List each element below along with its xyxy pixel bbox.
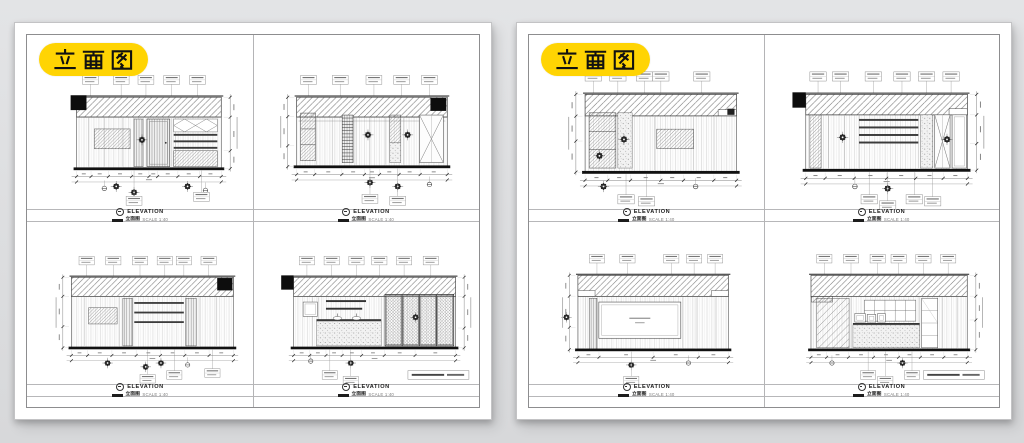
- elevation-caption-cn: 立面图: [125, 392, 139, 398]
- datum-marker-icon: [427, 177, 432, 187]
- elevation-title-badge: 立面图: [39, 43, 148, 76]
- datum-marker-icon: [853, 178, 858, 189]
- elevation-cell-p1-b: [253, 35, 479, 209]
- drawing-code-smudge: [112, 394, 123, 397]
- drawing-code-smudge: [853, 394, 864, 397]
- detail-marker-icon: [102, 358, 112, 368]
- material-tag: [138, 75, 154, 84]
- elevation-ref-circle-icon: [116, 208, 124, 216]
- material-tag: [396, 256, 411, 265]
- material-tag: [924, 197, 940, 206]
- elevation-caption: ELEVATION立面图SCALE 1:40: [338, 383, 394, 399]
- material-tag: [941, 254, 956, 263]
- material-tag: [810, 72, 826, 81]
- material-tag: [422, 75, 438, 84]
- elevation-caption-title: ELEVATION: [634, 384, 671, 390]
- material-tag: [157, 256, 172, 265]
- material-tag: [843, 254, 858, 263]
- elevation-drawing-p2-d: [764, 222, 999, 384]
- material-tag: [918, 72, 934, 81]
- drawing-code-smudge: [618, 394, 629, 397]
- material-tag: [83, 75, 99, 84]
- material-tag: [870, 254, 885, 263]
- material-tag: [366, 75, 382, 84]
- material-tag: [916, 254, 931, 263]
- material-tag: [906, 195, 922, 204]
- elevation-title-badge: 立面图: [541, 43, 650, 76]
- elevation-drawing-p2-b: [764, 35, 999, 209]
- elevation-ref-circle-icon: [116, 383, 124, 391]
- material-tag: [190, 75, 206, 84]
- elevation-ref-circle-icon: [342, 383, 350, 391]
- note-box: [923, 371, 984, 380]
- sheet-center-divider: [764, 35, 765, 407]
- elevation-caption: ELEVATION立面图SCALE 1:40: [853, 383, 909, 399]
- material-tag: [140, 374, 155, 383]
- elevation-caption-scale: SCALE 1:40: [649, 392, 675, 398]
- elevation-ref-circle-icon: [342, 208, 350, 216]
- elevation-ref-circle-icon: [623, 383, 631, 391]
- material-tag: [349, 256, 364, 265]
- material-tag: [167, 371, 182, 380]
- datum-marker-icon: [203, 182, 208, 192]
- elevation-caption: ELEVATION立面图SCALE 1:40: [618, 208, 674, 224]
- material-tag: [132, 256, 147, 265]
- material-tag: [394, 75, 410, 84]
- detail-marker-icon: [156, 358, 166, 368]
- sheet-2-grid: ELEVATION立面图SCALE 1:40ELEVATION立面图SCALE …: [529, 35, 999, 407]
- cjk-title-glyphs: [54, 49, 133, 71]
- material-tag: [865, 72, 881, 81]
- material-tag: [620, 254, 635, 263]
- material-tag: [664, 254, 679, 263]
- elevation-caption: ELEVATION立面图SCALE 1:40: [338, 208, 394, 224]
- material-tag: [194, 192, 210, 201]
- elevation-cell-p2-d: [764, 222, 999, 384]
- datum-marker-icon: [185, 357, 189, 367]
- detail-marker-icon: [598, 181, 609, 192]
- material-tag: [904, 371, 919, 380]
- material-tag: [878, 376, 893, 384]
- elevation-caption-title: ELEVATION: [869, 384, 906, 390]
- material-tag: [943, 72, 959, 81]
- elevation-caption-cn: 立面图: [632, 392, 646, 398]
- material-tag: [126, 196, 142, 205]
- material-tag: [362, 194, 378, 203]
- material-tag: [687, 254, 702, 263]
- elevation-cell-p2-b: [764, 35, 999, 209]
- elevation-cell-p1-c: [27, 222, 253, 384]
- drawing-sheet-1: ELEVATION立面图SCALE 1:40ELEVATION立面图SCALE …: [14, 22, 492, 420]
- elevation-caption-title: ELEVATION: [353, 209, 390, 215]
- sheet-center-divider: [253, 35, 254, 407]
- material-tag: [894, 72, 910, 81]
- material-tag: [832, 72, 848, 81]
- material-tag: [113, 75, 129, 84]
- detail-marker-icon: [182, 181, 193, 192]
- elevation-ref-circle-icon: [623, 208, 631, 216]
- detail-marker-icon: [140, 362, 150, 372]
- elevation-drawing-p1-c: [27, 222, 253, 384]
- elevation-caption-title: ELEVATION: [127, 384, 164, 390]
- elevation-cell-p1-d: [253, 222, 479, 384]
- datum-marker-icon: [686, 355, 690, 365]
- detail-marker-icon: [111, 181, 122, 192]
- elevation-drawing-p1-b: [253, 35, 479, 209]
- note-box: [408, 371, 469, 380]
- detail-marker-icon: [897, 358, 907, 368]
- material-tag: [861, 371, 876, 380]
- material-tag: [301, 75, 317, 84]
- elevation-caption: ELEVATION立面图SCALE 1:40: [853, 208, 909, 224]
- elevation-caption-scale: SCALE 1:40: [368, 392, 394, 398]
- elevation-ref-circle-icon: [858, 208, 866, 216]
- material-tag: [106, 256, 121, 265]
- material-tag: [879, 201, 895, 209]
- elevation-caption-cn: 立面图: [351, 392, 365, 398]
- preview-stage: ELEVATION立面图SCALE 1:40ELEVATION立面图SCALE …: [0, 0, 1024, 443]
- material-tag: [324, 256, 339, 265]
- elevation-ref-circle-icon: [858, 383, 866, 391]
- elevation-caption-scale: SCALE 1:40: [142, 392, 168, 398]
- drawing-code-smudge: [338, 394, 349, 397]
- elevation-caption-title: ELEVATION: [353, 384, 390, 390]
- elevation-caption-scale: SCALE 1:40: [884, 392, 910, 398]
- material-tag: [201, 256, 216, 265]
- elevation-caption: ELEVATION立面图SCALE 1:40: [112, 383, 168, 399]
- material-tag: [390, 196, 406, 205]
- material-tag: [891, 254, 906, 263]
- cjk-title-glyphs: [556, 49, 635, 71]
- elevation-caption: ELEVATION立面图SCALE 1:40: [112, 208, 168, 224]
- material-tag: [205, 369, 220, 378]
- material-tag: [589, 254, 604, 263]
- material-tag: [299, 256, 314, 265]
- elevation-caption: ELEVATION立面图SCALE 1:40: [618, 383, 674, 399]
- material-tag: [176, 256, 191, 265]
- drawing-sheet-2: ELEVATION立面图SCALE 1:40ELEVATION立面图SCALE …: [516, 22, 1012, 420]
- datum-marker-icon: [693, 178, 698, 189]
- material-tag: [164, 75, 180, 84]
- material-tag: [423, 256, 438, 265]
- elevation-caption-title: ELEVATION: [869, 209, 906, 215]
- material-tag: [79, 256, 94, 265]
- material-tag: [618, 195, 634, 204]
- datum-marker-icon: [830, 355, 834, 365]
- material-tag: [638, 197, 654, 206]
- elevation-drawing-p1-d: [253, 222, 479, 384]
- material-tag: [707, 254, 722, 263]
- sheet-1-grid: ELEVATION立面图SCALE 1:40ELEVATION立面图SCALE …: [27, 35, 479, 407]
- elevation-cell-p2-c: [529, 222, 764, 384]
- material-tag: [372, 256, 387, 265]
- datum-marker-icon: [309, 354, 313, 364]
- elevation-caption-title: ELEVATION: [634, 209, 671, 215]
- elevation-caption-title: ELEVATION: [127, 209, 164, 215]
- elevation-caption-cn: 立面图: [867, 392, 881, 398]
- material-tag: [653, 72, 669, 81]
- material-tag: [817, 254, 832, 263]
- material-tag: [332, 75, 348, 84]
- material-tag: [694, 72, 710, 81]
- elevation-drawing-p2-c: [529, 222, 764, 384]
- material-tag: [322, 371, 337, 380]
- material-tag: [861, 195, 877, 204]
